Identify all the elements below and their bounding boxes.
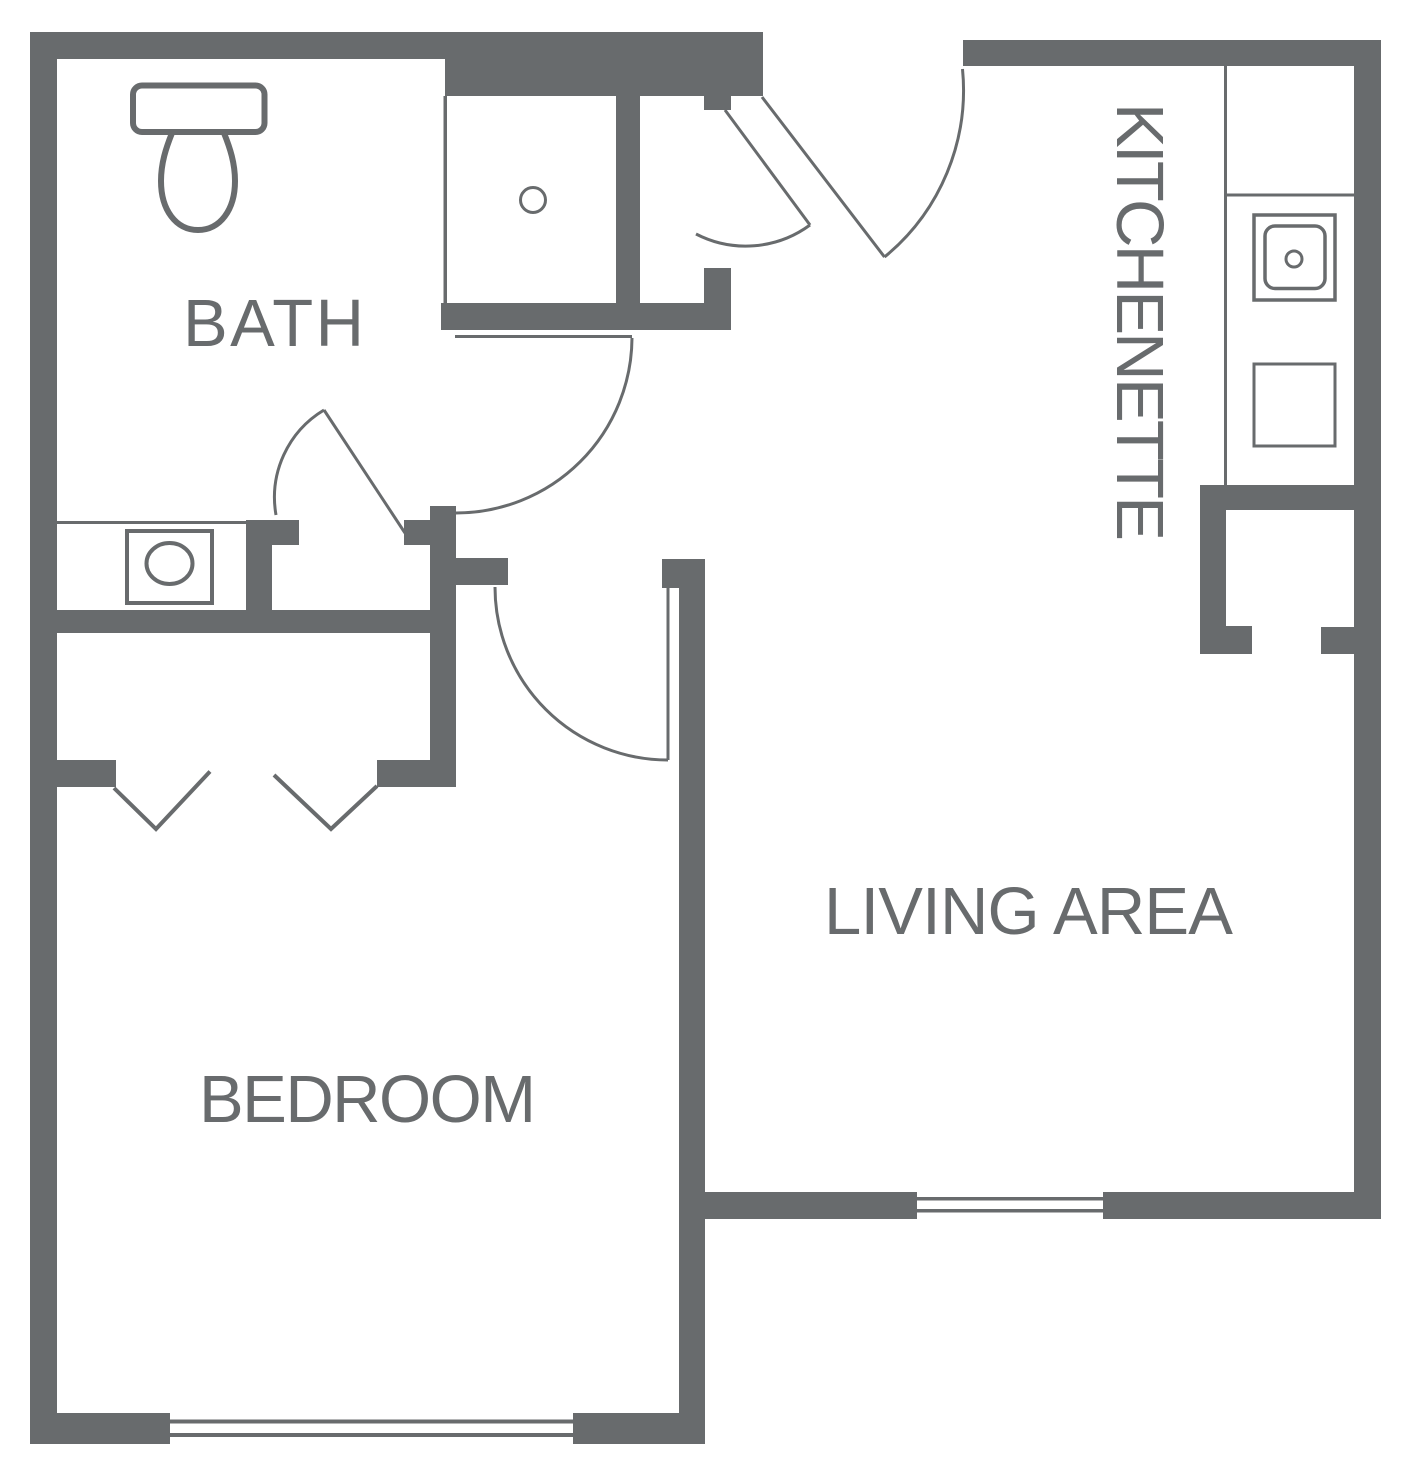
svg-text:LIVING AREA: LIVING AREA (824, 874, 1233, 949)
svg-text:BEDROOM: BEDROOM (199, 1062, 536, 1137)
svg-text:BATH: BATH (183, 286, 364, 361)
svg-text:KITCHENETTE: KITCHENETTE (1102, 103, 1177, 541)
